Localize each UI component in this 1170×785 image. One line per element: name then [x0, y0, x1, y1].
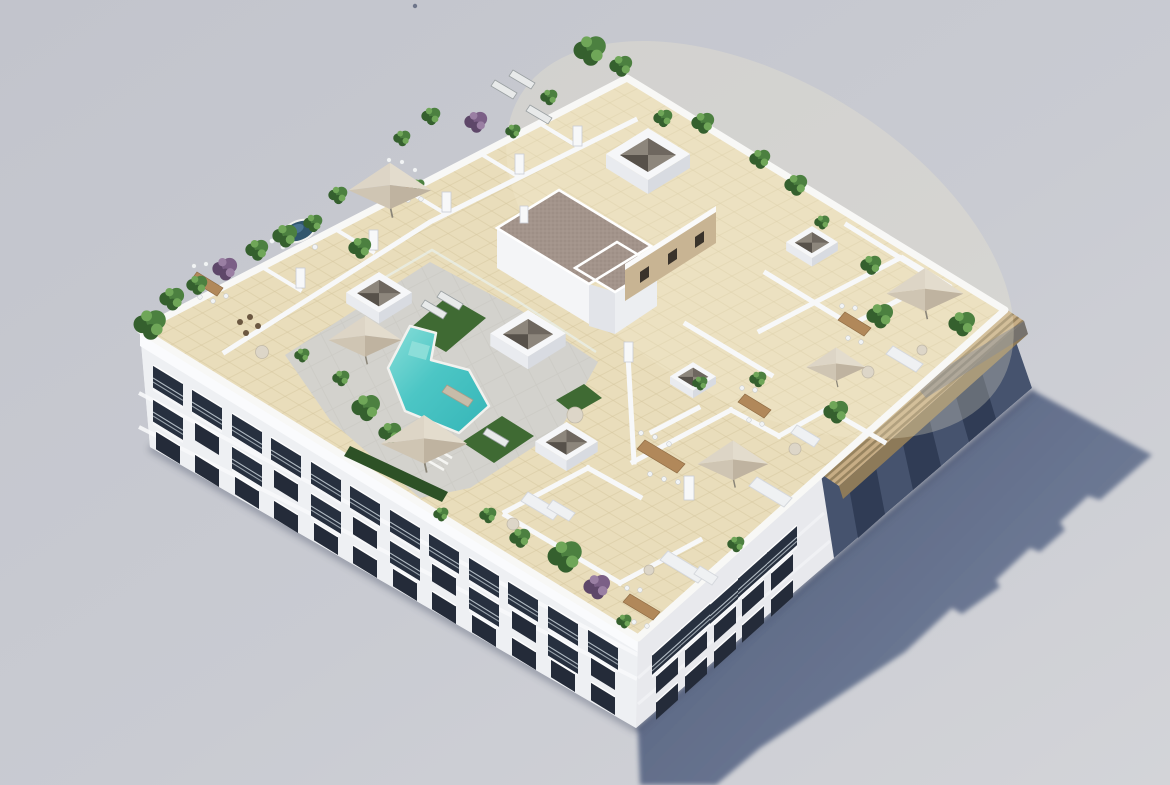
render-scene — [0, 0, 1170, 785]
bird-speck — [413, 4, 417, 8]
chimney — [520, 206, 528, 223]
core-wall-shaded — [589, 284, 615, 334]
architectural-render: Bird's-eye isometric render of a four-st… — [0, 0, 1170, 785]
